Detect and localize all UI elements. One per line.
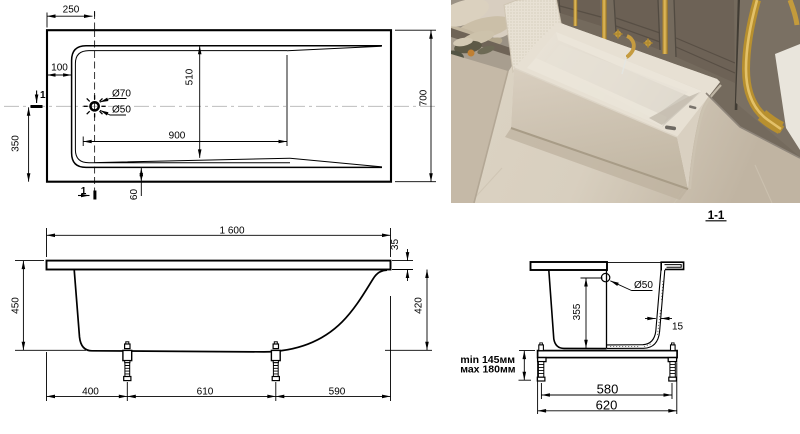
svg-text:Ø50: Ø50 — [112, 105, 131, 116]
svg-text:Ø70: Ø70 — [112, 89, 131, 100]
svg-text:60: 60 — [129, 189, 140, 201]
svg-text:1: 1 — [81, 186, 87, 197]
svg-text:35: 35 — [390, 239, 401, 251]
svg-text:400: 400 — [82, 387, 99, 398]
svg-text:100: 100 — [51, 63, 68, 74]
svg-text:250: 250 — [63, 5, 80, 16]
svg-text:700: 700 — [419, 89, 430, 106]
svg-text:450: 450 — [11, 297, 22, 314]
svg-text:580: 580 — [597, 382, 619, 397]
svg-text:Ø50: Ø50 — [634, 280, 653, 291]
svg-text:610: 610 — [197, 387, 214, 398]
svg-text:510: 510 — [185, 68, 196, 85]
svg-text:15: 15 — [672, 322, 684, 333]
svg-text:590: 590 — [329, 387, 346, 398]
svg-text:900: 900 — [169, 131, 186, 142]
svg-text:1: 1 — [40, 90, 46, 101]
svg-text:420: 420 — [414, 297, 425, 314]
svg-text:маx 180мм: маx 180мм — [460, 364, 516, 376]
svg-text:350: 350 — [11, 135, 22, 152]
svg-text:1 600: 1 600 — [219, 226, 244, 237]
svg-text:355: 355 — [572, 303, 583, 320]
svg-text:620: 620 — [596, 397, 618, 412]
